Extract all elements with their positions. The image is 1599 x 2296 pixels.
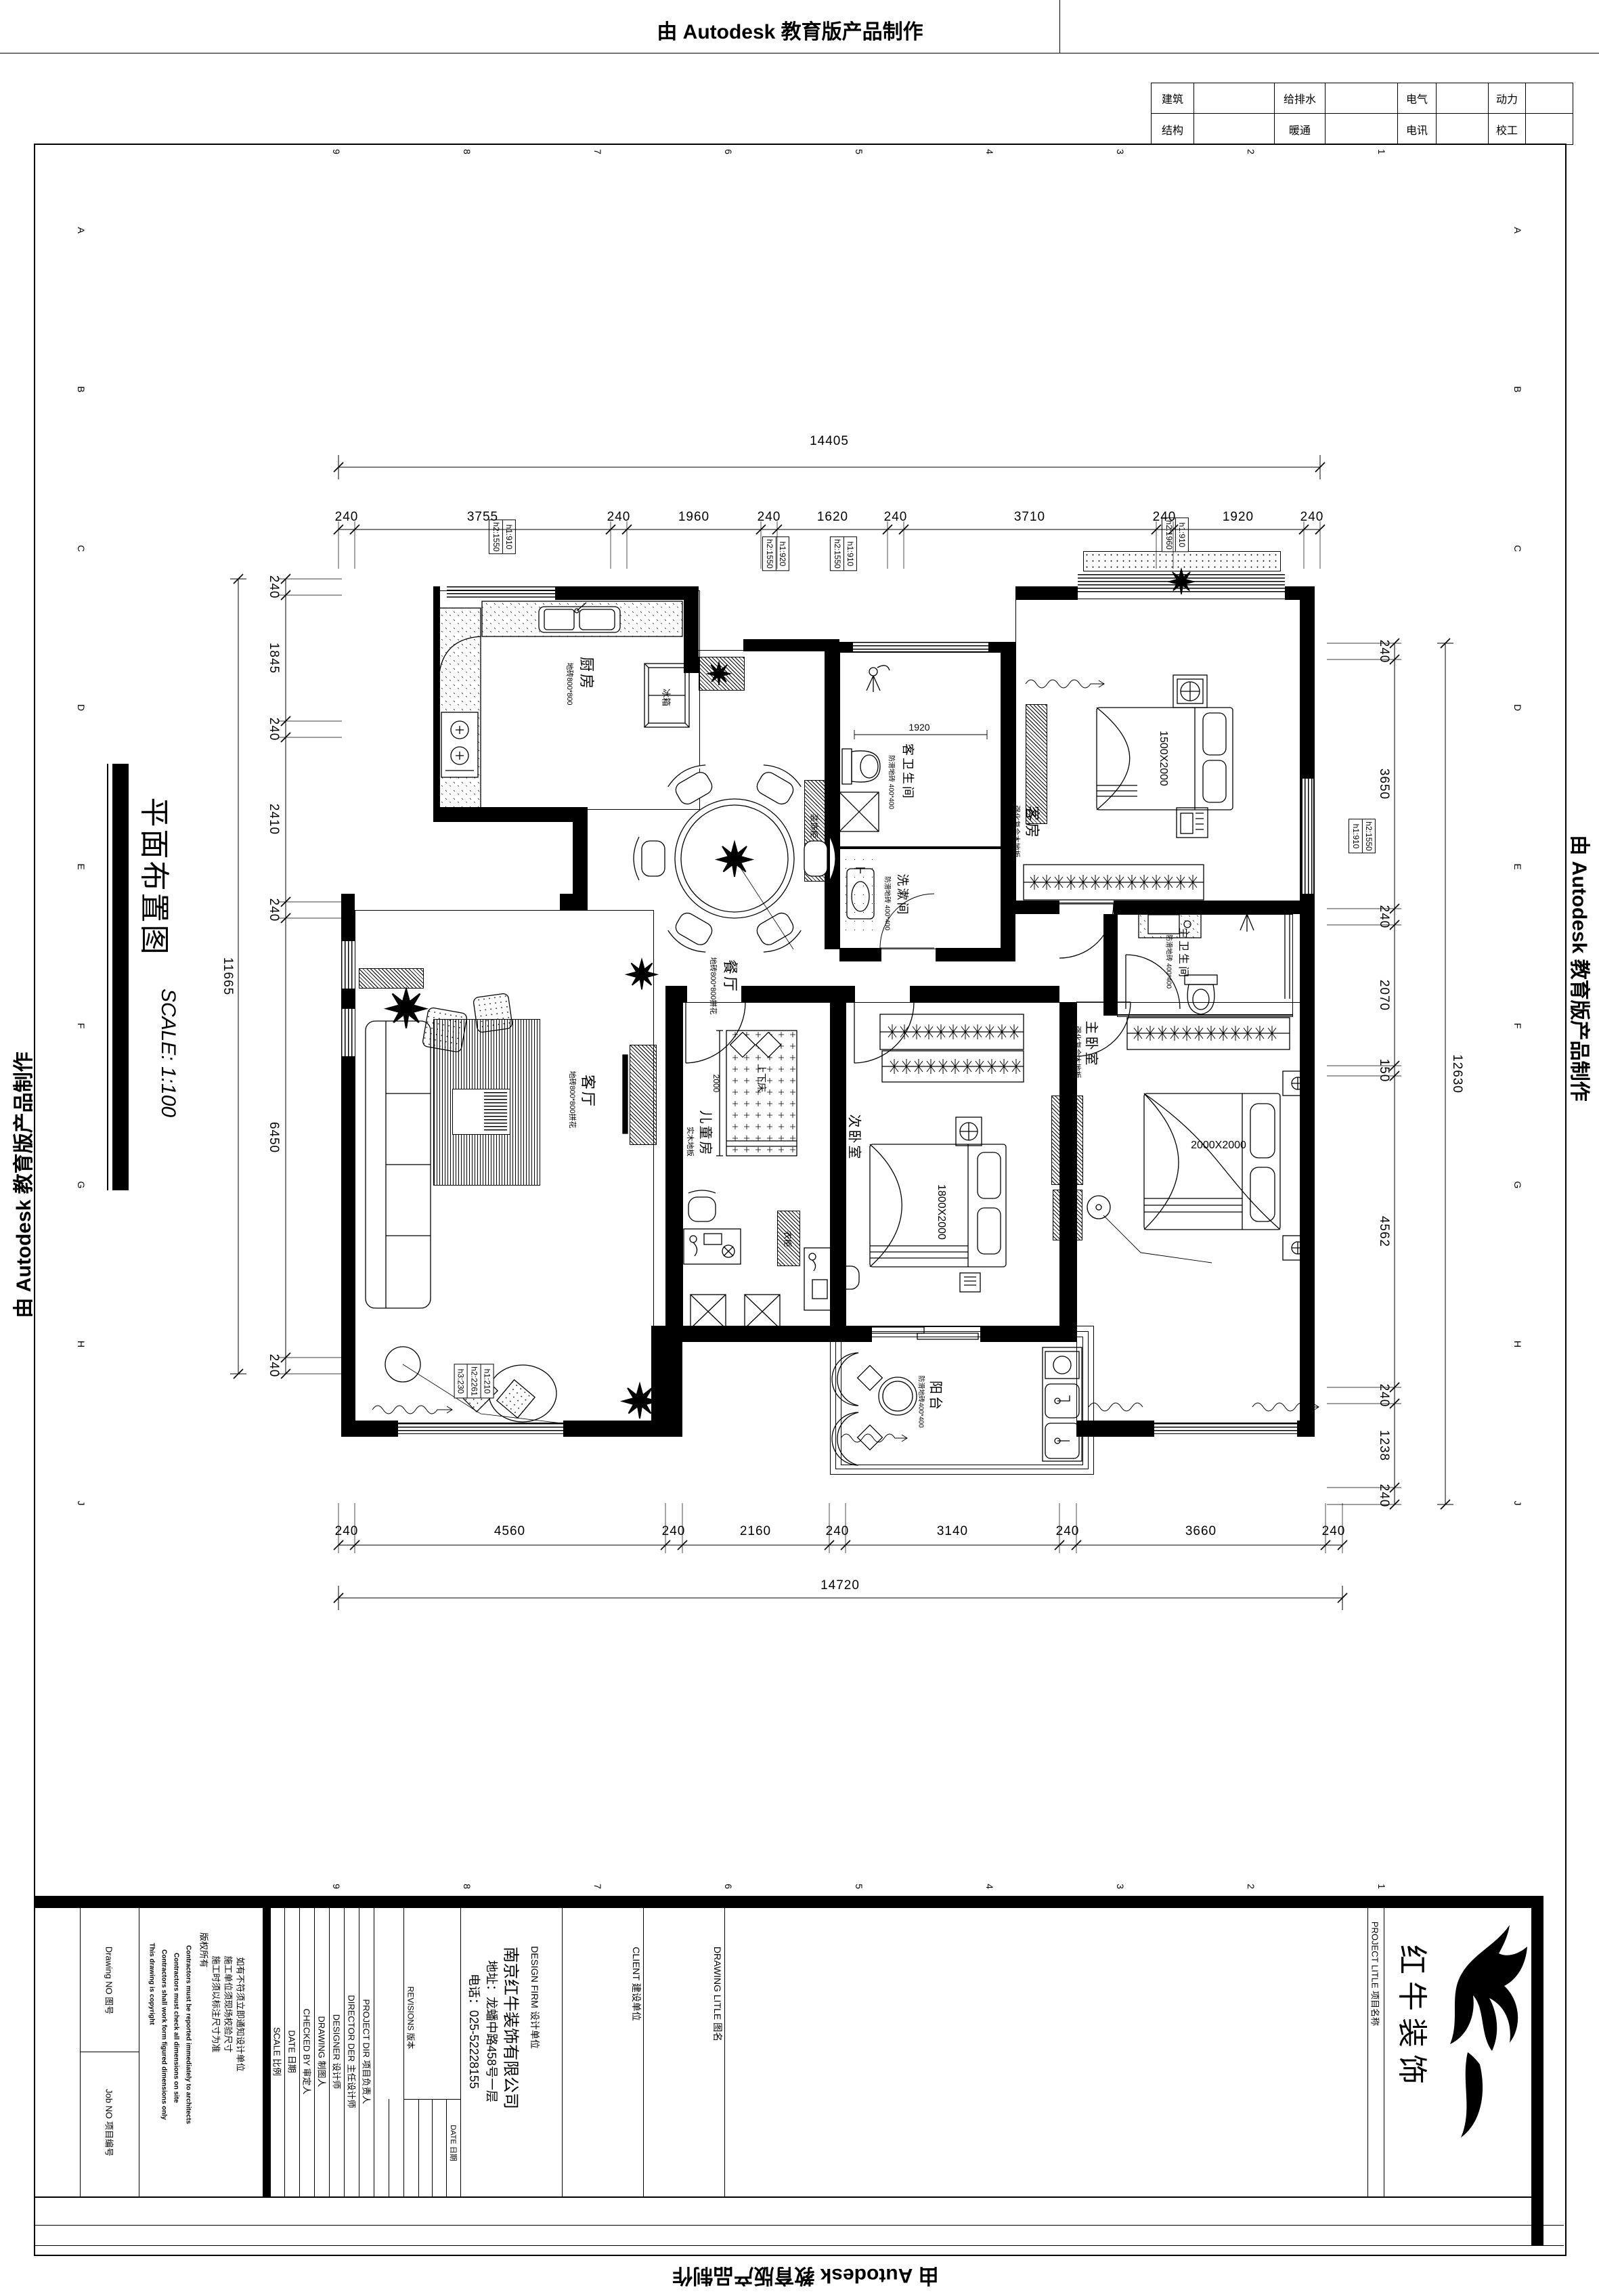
grid-row: F — [76, 1023, 87, 1029]
dim-seg: 240 — [884, 510, 908, 525]
grid-col-b: 3 — [1115, 1884, 1126, 1889]
room-sub-master-bath: 防滑地砖 400*400 — [1165, 934, 1175, 989]
dim-seg: 240 — [266, 898, 281, 922]
room-label-wash: 洗漱间 — [894, 874, 912, 917]
grid-row-r: D — [1512, 704, 1523, 711]
grid-row-r: E — [1512, 863, 1523, 869]
room-label-guest-bath: 客卫生间 — [900, 743, 917, 800]
balcony-furniture — [832, 1327, 1082, 1465]
sheet-scale: SCALE: 1:100 — [156, 989, 179, 1117]
titleblock-line — [34, 2225, 1564, 2226]
tv-set — [623, 1055, 628, 1133]
room-sub-balcony: 防滑地砖400*400 — [917, 1375, 927, 1427]
kitchen-counter — [439, 601, 682, 811]
room-sub-kitchen: 地砖800*800 — [565, 663, 575, 706]
dim-seg: 1845 — [266, 643, 281, 674]
tb-rule — [562, 1908, 563, 2196]
plant — [623, 1384, 657, 1418]
grid-row: J — [76, 1501, 87, 1506]
dim-seg: 3650 — [1376, 768, 1391, 800]
dim-seg: 3755 — [467, 510, 498, 525]
tb-field: DATE 日期 — [286, 2030, 299, 2073]
room-label-master: 主卧室 — [1083, 1021, 1103, 1068]
grid-col-b: 4 — [984, 1884, 995, 1889]
dim-seg: 240 — [1300, 510, 1324, 525]
grid-col: 6 — [723, 149, 734, 154]
room-sub-children: 实木地板 — [685, 1127, 696, 1156]
tb-rule — [359, 1908, 359, 2196]
dim-seg: 240 — [1056, 1524, 1080, 1539]
dim-seg: 4562 — [1376, 1216, 1391, 1247]
tb-note-en: Contractors shall work form figured dime… — [160, 1949, 168, 2120]
cell-blank — [1437, 114, 1489, 144]
dim-total-right: 12630 — [1449, 1054, 1464, 1093]
tb-note-en: This drawing is copyright — [148, 1943, 156, 2024]
dim-seg: 3710 — [1014, 510, 1045, 525]
room-sub-master: 强化复合木地板 — [1072, 1026, 1083, 1079]
dim-chain-bottom — [223, 1476, 1374, 1652]
grid-col: 7 — [592, 149, 603, 154]
guest-phone — [1177, 808, 1208, 838]
dim-seg: 240 — [1376, 1484, 1391, 1508]
room-label-living: 客厅 — [578, 1075, 600, 1108]
cell-label: 建筑 — [1152, 83, 1194, 114]
tb-project-title-label: PROJECT LITLE 项目名称 — [1370, 1922, 1382, 2026]
cell-label: 暖通 — [1275, 114, 1326, 144]
tb-rule — [403, 1908, 404, 2196]
dim-seg: 2070 — [1376, 980, 1391, 1011]
dim-total-top: 14405 — [810, 434, 849, 449]
cell-blank — [1437, 83, 1489, 114]
grid-col: 5 — [854, 149, 864, 154]
room-label-second: 次卧室 — [846, 1114, 866, 1161]
grid-row: A — [76, 227, 87, 233]
guest-door — [1059, 904, 1114, 958]
bull-logo-icon — [1430, 1920, 1531, 2143]
tb-note-cn: 施工单位须现场校验尺寸 — [223, 1955, 236, 2052]
dim-seg: 2410 — [266, 804, 281, 835]
grid-col-b: 8 — [462, 1884, 473, 1889]
tb-rule-h — [403, 2099, 461, 2100]
fold-mark — [1059, 0, 1060, 53]
grid-row-r: B — [1512, 386, 1523, 392]
grid-row: G — [76, 1182, 87, 1189]
grid-row-r: F — [1512, 1023, 1523, 1029]
dim-seg: 240 — [266, 718, 281, 741]
grid-col: 4 — [984, 149, 995, 154]
sheet-title: 平面布置图 — [135, 798, 179, 957]
dim-seg: 240 — [1153, 510, 1177, 525]
label-shower-width: 1920 — [908, 722, 929, 733]
dim-seg: 240 — [607, 510, 631, 525]
room-label-master-bath: 主卫生间 — [1177, 928, 1193, 979]
tb-field: DIRECTOR DER 主任设计师 — [346, 1995, 359, 2108]
plant — [387, 989, 426, 1028]
dim-seg: 240 — [335, 510, 359, 525]
grid-col-b: 6 — [723, 1884, 734, 1889]
titleblock-right-bar — [1531, 1896, 1543, 2245]
plant — [627, 959, 657, 989]
guest-ac-unit — [1173, 675, 1207, 708]
cell-label: 电气 — [1398, 83, 1437, 114]
room-sub-dining: 地砖800*800拼花 — [708, 957, 719, 1015]
sofa — [366, 1021, 562, 1423]
room-sub-guest-bath: 防滑地砖 400*400 — [888, 755, 898, 809]
dim-seg: 6450 — [266, 1122, 281, 1153]
label-wardrobe: 衣柜 — [783, 1231, 794, 1247]
grid-col: 9 — [331, 149, 342, 154]
window-tag: h1:210h2:2261h3:230 — [454, 1364, 494, 1398]
grid-col-b: 7 — [592, 1884, 603, 1889]
dim-seg: 1238 — [1376, 1430, 1391, 1461]
tb-rule — [446, 2099, 447, 2196]
tb-rule — [374, 1908, 374, 2196]
dim-seg: 4560 — [494, 1524, 525, 1539]
room-sub-wash: 防滑地砖 400*400 — [883, 876, 894, 930]
tb-rule — [344, 1908, 345, 2196]
plant — [707, 662, 730, 685]
dim-seg: 1960 — [678, 510, 709, 525]
tb-field: DRAWING 制图人 — [316, 2016, 329, 2087]
cell-label: 动力 — [1489, 83, 1526, 114]
grid-col-b: 5 — [854, 1884, 864, 1889]
dim-seg: 240 — [758, 510, 781, 525]
grid-row-r: C — [1512, 545, 1523, 552]
tb-firm-addr: 地址：龙蟠中路458号一层 — [483, 1960, 501, 2102]
room-label-kitchen: 厨房 — [577, 657, 598, 691]
children-desk — [684, 1190, 741, 1264]
room-label-guest: 客房 — [1022, 806, 1044, 840]
tb-note-en: Contractors must check all dimensions on… — [173, 1953, 180, 2103]
tb-rule — [418, 2099, 419, 2196]
tb-rule — [432, 2099, 433, 2196]
tb-note-cn: 版权所有 — [198, 1932, 211, 1968]
tb-rule — [329, 1908, 330, 2196]
master-wardrobe — [1127, 1018, 1290, 1049]
dim-seg: 240 — [1376, 905, 1391, 929]
dim-seg: 240 — [266, 1354, 281, 1378]
cell-blank — [1194, 83, 1275, 114]
tb-revisions: REVISIONS 版本 — [406, 1987, 417, 2050]
cell-label: 给排水 — [1275, 83, 1326, 114]
label-deco-cabinet: 装饰柜 — [809, 814, 820, 838]
tb-field: CHECKED BY 审定人 — [301, 2009, 314, 2095]
cell-blank — [1326, 83, 1398, 114]
top-border-line — [0, 53, 1599, 53]
grid-row-r: J — [1512, 1501, 1523, 1506]
grid-row: C — [76, 545, 87, 552]
tb-note-en: Contractors must be reported immediately… — [185, 1945, 192, 2124]
room-label-balcony: 阳台 — [927, 1381, 947, 1412]
tb-design-firm-label: DESIGN FIRM 设计单位 — [528, 1946, 542, 2049]
titleblock-top-bar — [34, 1896, 1533, 1908]
label-bunk: 上下床 — [755, 1064, 768, 1092]
dim-seg: 1920 — [1223, 510, 1254, 525]
tb-rule — [284, 1908, 285, 2196]
grid-col-b: 1 — [1376, 1884, 1387, 1889]
tb-rule — [389, 2099, 389, 2196]
dim-seg: 3660 — [1185, 1524, 1217, 1539]
tb-rule — [460, 1908, 461, 2196]
bunk-bed — [716, 1031, 797, 1156]
room-sub-second: 强化复合木地板 — [835, 1120, 846, 1172]
tb-firm-tel: 电话：025-52228155 — [466, 1974, 483, 2089]
tb-rule — [314, 1908, 315, 2196]
grid-row-r: A — [1512, 227, 1523, 233]
label-bed-second: 1800X2000 — [935, 1184, 947, 1240]
banner-right: 由 Autodesk 教育版产品制作 — [1567, 835, 1596, 1101]
tb-field: DESIGNER 设计师 — [331, 2014, 344, 2089]
dim-chain-right — [1327, 596, 1503, 1557]
label-bunk-dim: 2000 — [711, 1075, 721, 1093]
room-sub-living: 地砖800*800拼花 — [567, 1071, 578, 1129]
banner-bottom: 由 Autodesk 教育版产品制作 — [672, 2263, 938, 2293]
tb-rev-date: DATE 日期 — [448, 2125, 459, 2161]
tb-rule — [1384, 1908, 1384, 2196]
room-label-children: 儿童房 — [697, 1110, 717, 1157]
master-bed — [1144, 1093, 1280, 1230]
cell-blank — [1526, 83, 1573, 114]
dim-total-left: 11665 — [220, 957, 235, 995]
dim-seg: 3140 — [937, 1524, 968, 1539]
tb-rule — [80, 1908, 81, 2196]
master-bath-fixtures — [1126, 907, 1290, 1014]
title-rule — [107, 764, 108, 1190]
dim-seg: 2160 — [740, 1524, 771, 1539]
cell-label: 电讯 — [1398, 114, 1437, 144]
discipline-table: 建筑 给排水 电气 动力 结构 暖通 电讯 校工 — [1151, 83, 1573, 145]
tb-note-cn: 施工时须以标注尺寸为准 — [211, 1955, 223, 2052]
tb-rule-h — [80, 2052, 139, 2052]
grid-col-b: 9 — [331, 1884, 342, 1889]
dim-total-bottom: 14720 — [820, 1578, 860, 1593]
tb-rule — [139, 1908, 139, 2196]
tb-note-cn: 如有不符须立即通知设计单位 — [235, 1957, 248, 2071]
tb-rule — [299, 1908, 300, 2196]
titleblock-line — [34, 2196, 1543, 2198]
second-wardrobe — [880, 1014, 1024, 1082]
grid-col-b: 2 — [1246, 1884, 1256, 1889]
tb-rule — [643, 1908, 644, 2196]
dining-table — [634, 760, 835, 957]
label-bed-master: 2000X2000 — [1191, 1140, 1246, 1152]
guest-wardrobe — [1024, 865, 1204, 900]
banner-left: 由 Autodesk 教育版产品制作 — [7, 1052, 37, 1318]
dim-seg: 240 — [1376, 1384, 1391, 1408]
storage-boxes — [691, 1295, 780, 1328]
grid-row: E — [76, 863, 87, 869]
banner-top: 由 Autodesk 教育版产品制作 — [657, 15, 923, 45]
label-fridge: 冰箱 — [661, 689, 674, 706]
dim-seg: 150 — [1376, 1059, 1391, 1083]
tb-drawing-no: Drawing NO 图号 — [104, 1947, 116, 2014]
grid-row: H — [76, 1341, 87, 1347]
living-poufs — [422, 993, 556, 1422]
cell-label: 校工 — [1489, 114, 1526, 144]
second-desk — [804, 1117, 982, 1310]
dim-seg: 1620 — [817, 510, 848, 525]
tb-field: PROJECT DIR 项目负责人 — [361, 1999, 374, 2104]
title-bar — [112, 764, 129, 1190]
grid-col: 1 — [1376, 149, 1387, 154]
tb-drawing-title-label: DRAWING LITLE 图名 — [711, 1947, 724, 2041]
grid-col: 2 — [1246, 149, 1256, 154]
grid-row-r: H — [1512, 1341, 1523, 1347]
grid-col: 8 — [462, 149, 473, 154]
dim-chain-top — [223, 379, 1374, 582]
master-nightstands — [1283, 1071, 1313, 1260]
cell-blank — [1526, 114, 1573, 144]
dim-seg: 240 — [662, 1524, 686, 1539]
room-sub-guest: 强化复合木地板 — [1011, 806, 1022, 858]
tb-rule-thick — [263, 1908, 271, 2196]
tb-client-label: CLIENT 建设单位 — [630, 1947, 643, 2020]
tb-firm-name: 南京红牛装饰有限公司 — [501, 1947, 525, 2109]
titleblock-line — [34, 2245, 1564, 2246]
grid-row: D — [76, 704, 87, 711]
dim-seg: 240 — [266, 576, 281, 599]
tb-rule — [1367, 1908, 1368, 2196]
grid-row-r: G — [1512, 1182, 1523, 1189]
room-label-dining: 餐厅 — [720, 959, 742, 993]
dim-seg: 240 — [826, 1524, 850, 1539]
grid-col: 3 — [1115, 149, 1126, 154]
label-bed-guest: 1500X2000 — [1157, 731, 1169, 786]
cell-label: 结构 — [1152, 114, 1194, 144]
tb-field: SCALE 比例 — [271, 2027, 284, 2076]
drawing-sheet: 由 Autodesk 教育版产品制作 由 Autodesk 教育版产品制作 由 … — [0, 0, 1599, 2296]
tb-rule — [724, 1908, 725, 2196]
grid-row: B — [76, 386, 87, 392]
cell-blank — [1194, 114, 1275, 144]
dim-seg: 240 — [1376, 640, 1391, 664]
curtains — [372, 680, 1319, 1442]
dim-seg: 240 — [335, 1524, 359, 1539]
cell-blank — [1326, 114, 1398, 144]
tb-job-no: Job NO 项目编号 — [104, 2089, 116, 2157]
